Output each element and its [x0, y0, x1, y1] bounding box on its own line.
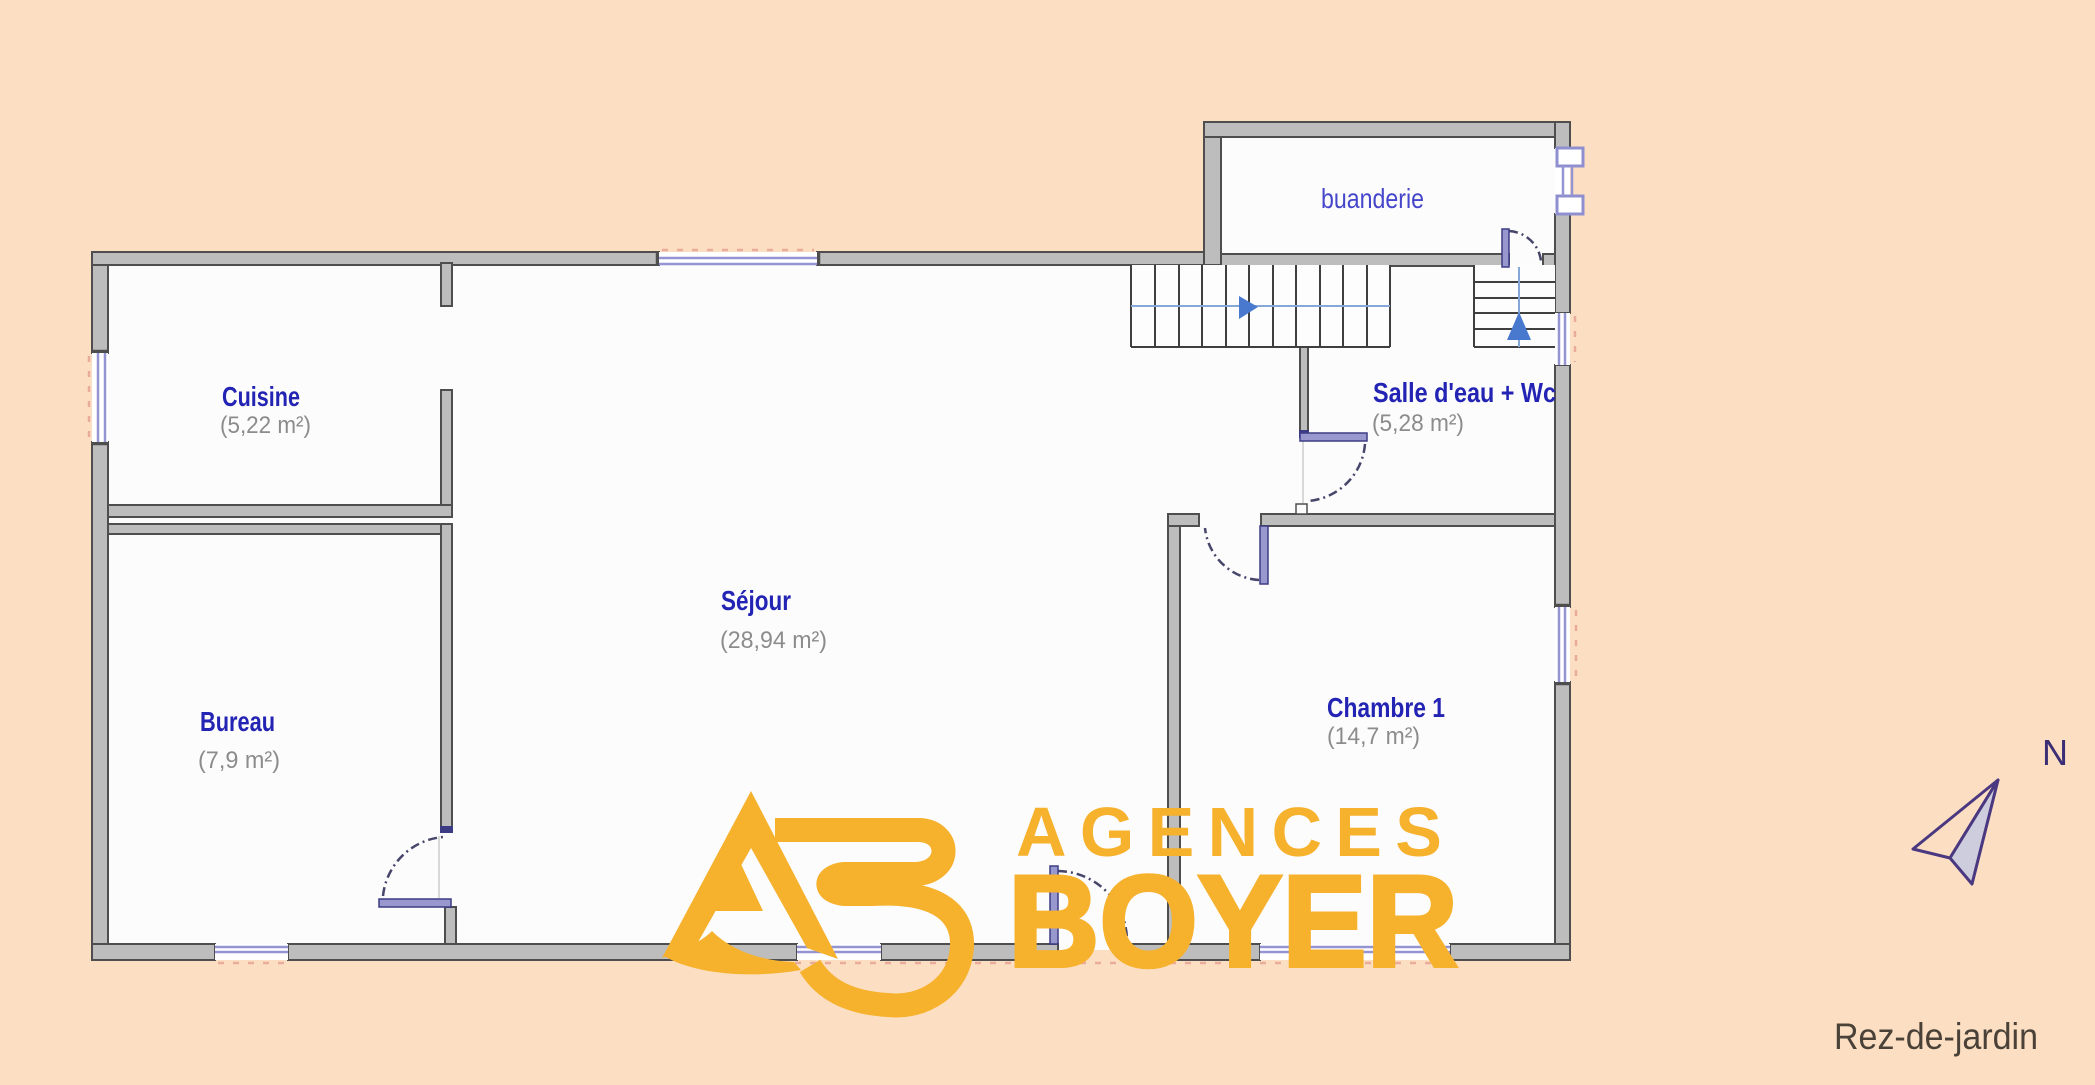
svg-text:Chambre 1: Chambre 1 — [1327, 692, 1445, 723]
svg-text:Bureau: Bureau — [200, 706, 275, 737]
svg-text:(5,28 m²): (5,28 m²) — [1372, 410, 1464, 437]
svg-text:Séjour: Séjour — [721, 585, 791, 616]
svg-text:(28,94 m²): (28,94 m²) — [720, 627, 827, 654]
svg-text:buanderie: buanderie — [1321, 183, 1424, 214]
svg-text:Rez-de-jardin: Rez-de-jardin — [1834, 1016, 2038, 1057]
svg-text:Cuisine: Cuisine — [222, 381, 300, 412]
svg-text:(14,7 m²): (14,7 m²) — [1327, 723, 1420, 750]
svg-text:N: N — [2042, 732, 2068, 773]
svg-text:(7,9 m²): (7,9 m²) — [198, 747, 280, 774]
svg-text:(5,22 m²): (5,22 m²) — [220, 412, 311, 439]
svg-text:BOYER: BOYER — [1008, 848, 1458, 994]
svg-text:Salle d'eau + Wc: Salle d'eau + Wc — [1373, 377, 1556, 408]
